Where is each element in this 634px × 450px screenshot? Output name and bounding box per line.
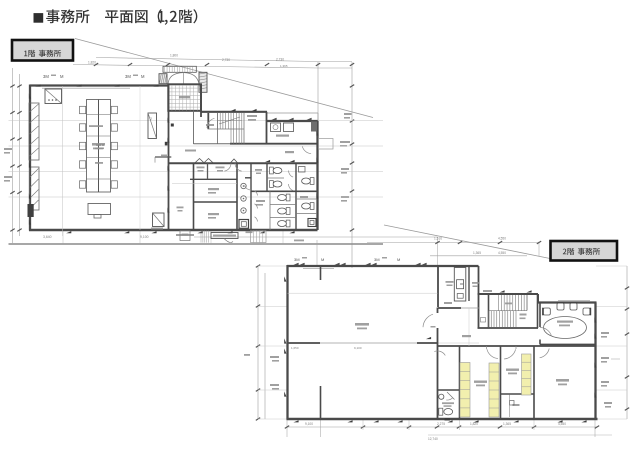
svg-text:9,100: 9,100 [354,346,362,350]
svg-text:1,365: 1,365 [473,251,481,255]
svg-text:3M: 3M [374,257,380,262]
svg-text:M: M [60,74,64,79]
svg-text:M: M [321,257,324,262]
svg-text:2,730: 2,730 [222,58,230,62]
svg-text:3M: 3M [125,74,131,79]
svg-text:12,740: 12,740 [428,437,438,441]
svg-text:1,516: 1,516 [434,237,442,241]
svg-text:M: M [141,74,145,79]
svg-text:9,100: 9,100 [305,422,313,426]
svg-text:2: 2 [150,117,152,121]
svg-text:1,650: 1,650 [291,346,299,350]
svg-text:4,550: 4,550 [498,237,506,241]
svg-text:1,365: 1,365 [503,422,511,426]
svg-text:M: M [397,257,400,262]
svg-text:2,730: 2,730 [276,57,284,61]
svg-text:1,800: 1,800 [170,53,178,57]
svg-text:4,550: 4,550 [498,251,506,255]
svg-text:3,640: 3,640 [43,235,52,239]
svg-text:1,365: 1,365 [280,64,288,68]
svg-text:9,100: 9,100 [140,235,149,239]
svg-text:1,820: 1,820 [88,60,96,64]
svg-text:1,820: 1,820 [470,422,478,426]
svg-text:3M: 3M [294,257,300,262]
svg-text:4,550: 4,550 [558,422,566,426]
svg-text:3M: 3M [43,74,49,79]
svg-text:2,275: 2,275 [437,422,445,426]
